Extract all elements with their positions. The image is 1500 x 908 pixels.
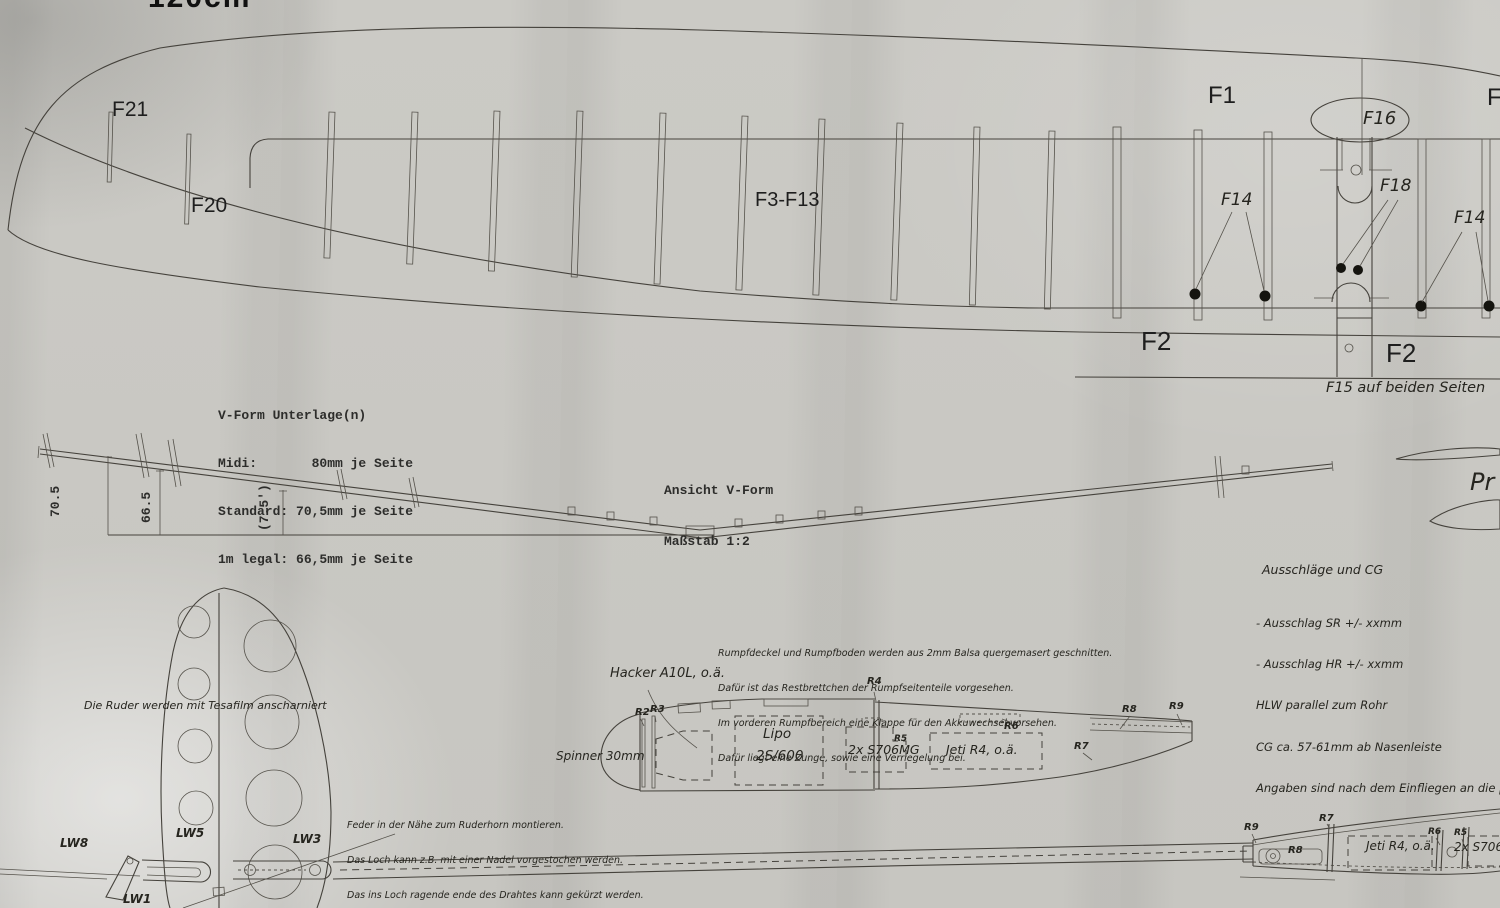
cg-note-line: Angaben sind nach dem Einfliegen an die … [1256, 782, 1500, 796]
label-f14-right: F14 [1454, 208, 1485, 228]
vform-table-row: Midi: 80mm je Seite [218, 456, 413, 472]
label-r4: R4 [867, 676, 882, 687]
battery-label-line1: Lipo [763, 726, 791, 742]
side-label-r6: R6 [1428, 827, 1441, 837]
vform-table-row: Standard: 70,5mm je Seite [218, 504, 413, 520]
motor-label: Hacker A10L, o.ä. [610, 666, 725, 681]
side-label-r8: R8 [1288, 845, 1303, 856]
label-f14-left: F14 [1221, 190, 1252, 210]
rib-marker-dots [1190, 200, 1495, 312]
hairpin-spring [142, 860, 211, 882]
servos-label: 2x S706MG [848, 742, 920, 757]
vform-table-title: V-Form Unterlage(n) [218, 408, 413, 424]
fuselage-note-line: Dafür ist das Restbrettchen der Rumpfsei… [718, 683, 1112, 695]
label-r9: R9 [1169, 701, 1184, 712]
label-f3-f13: F3-F13 [755, 189, 819, 212]
feder-note-line: Das Loch kann z.B. mit einer Nadel vorge… [347, 855, 838, 867]
label-r3: R3 [650, 704, 665, 715]
profile-label-partial: Pr [1470, 468, 1494, 496]
label-f1-right-partial: F1 [1487, 84, 1500, 112]
label-lw1: LW1 [123, 892, 151, 906]
side-label-r9: R9 [1244, 822, 1259, 833]
vform-table-row: 1m legal: 66,5mm je Seite [218, 552, 413, 568]
wing-center-tube [1311, 58, 1409, 377]
fuselage-note-line: Rumpfdeckel und Rumpfboden werden aus 2m… [718, 648, 1112, 660]
dim-7-5: (7.5') [257, 484, 272, 531]
cg-note-line: CG ca. 57-61mm ab Nasenleiste [1256, 741, 1500, 755]
label-r2: R2 [635, 707, 650, 718]
wing-plan-drawing [8, 27, 1500, 379]
vform-table: V-Form Unterlage(n) Midi: 80mm je Seite … [218, 376, 413, 584]
side-receiver-label: Jeti R4, o.ä. [1366, 839, 1435, 853]
side-servos-label-partial: 2x S706M [1454, 840, 1500, 854]
receiver-label: Jeti R4, o.ä. [946, 742, 1018, 757]
side-label-r5: R5 [1454, 828, 1467, 838]
motor-outline [656, 731, 712, 780]
label-r5: R5 [894, 734, 907, 744]
pushrod-wire [0, 869, 140, 879]
label-f16: F16 [1363, 108, 1396, 129]
side-label-r7: R7 [1319, 813, 1334, 824]
note-f15: F15 auf beiden Seiten [1326, 380, 1485, 396]
vform-view-scale: Maßstab 1:2 [664, 533, 773, 550]
battery-label-line2: 2S/600 [756, 748, 803, 764]
cg-note-line: - Ausschlag SR +/- xxmm [1256, 617, 1500, 631]
fin-lightening-holes [178, 606, 302, 899]
feder-note-line: Das ins Loch ragende ende des Drahtes ka… [347, 890, 838, 902]
dim-66-5: 66.5 [139, 492, 154, 523]
label-f2-right: F2 [1386, 338, 1416, 369]
spinner-label: Spinner 30mm [556, 749, 645, 763]
sheet-title-partial: 120cm [148, 0, 251, 15]
label-f18: F18 [1380, 176, 1411, 196]
fin-hinge-note: Die Ruder werden mit Tesafilm anscharnie… [84, 699, 327, 712]
cg-note-line: - Ausschlag HR +/- xxmm [1256, 658, 1500, 672]
dim-70-5: 70.5 [48, 486, 63, 517]
label-r6: R6 [1004, 721, 1019, 732]
wing-ribs [107, 111, 1490, 320]
vform-view-label: Ansicht V-Form Maßstab 1:2 [664, 448, 773, 567]
label-r8: R8 [1122, 704, 1137, 715]
label-lw5: LW5 [176, 826, 204, 840]
scanned-plan-sheet: 120cm F21 F20 F3-F13 F1 F1 F16 F18 F14 F… [0, 0, 1500, 908]
label-f21: F21 [112, 98, 148, 122]
label-f1: F1 [1208, 82, 1236, 110]
label-lw8: LW8 [60, 836, 88, 850]
feder-notes: Feder in der Nähe zum Ruderhorn montiere… [347, 797, 838, 908]
cg-note-line: HLW parallel zum Rohr [1256, 699, 1500, 713]
vform-view-title: Ansicht V-Form [664, 482, 773, 499]
cg-notes: - Ausschlag SR +/- xxmm - Ausschlag HR +… [1256, 589, 1500, 810]
cg-notes-title: Ausschläge und CG [1262, 562, 1383, 577]
label-lw3: LW3 [293, 832, 321, 846]
label-f20: F20 [191, 194, 227, 218]
label-f2-left: F2 [1141, 326, 1171, 357]
label-r7: R7 [1074, 741, 1089, 752]
feder-note-line: Feder in der Nähe zum Ruderhorn montiere… [347, 820, 838, 832]
